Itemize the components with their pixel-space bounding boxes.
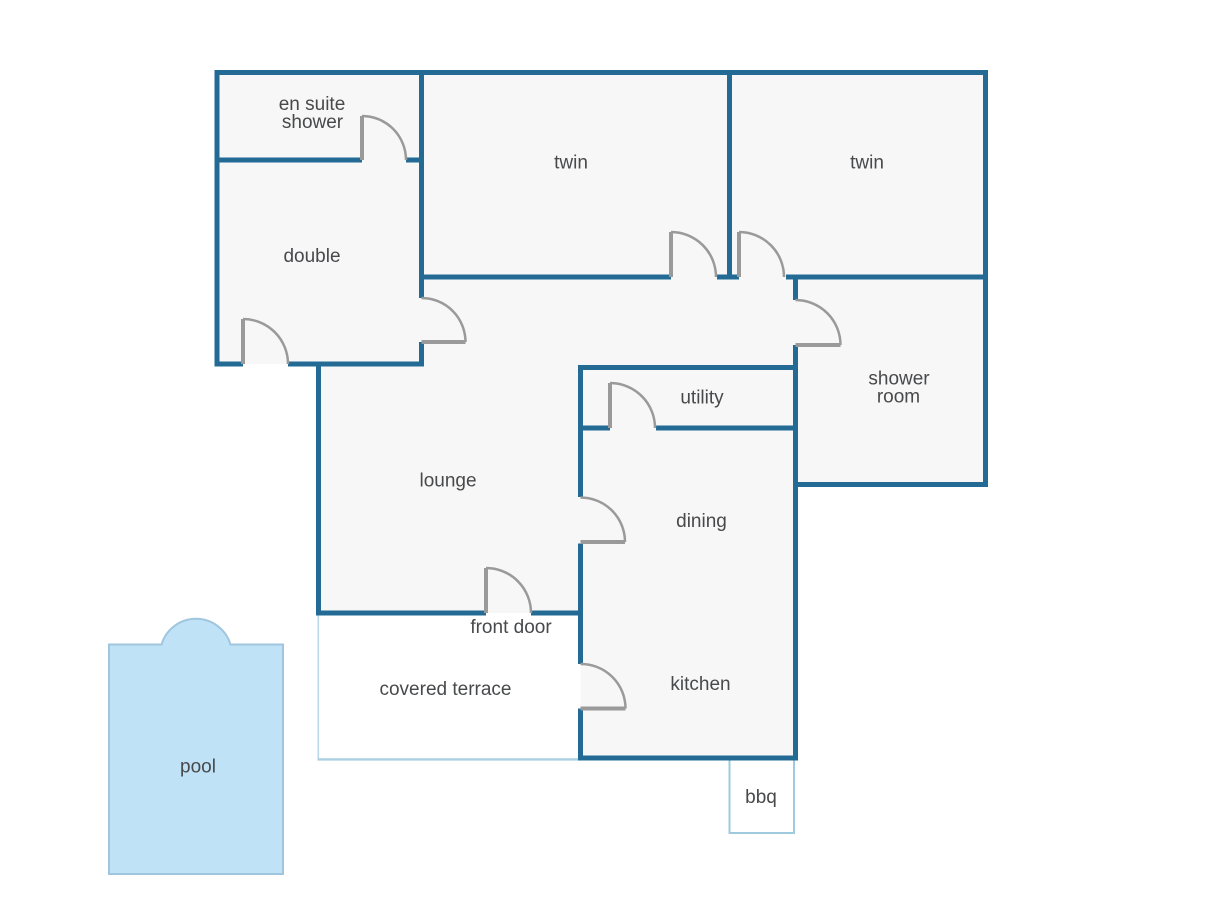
svg-text:covered terrace: covered terrace xyxy=(379,679,511,700)
svg-text:front door: front door xyxy=(470,617,552,638)
svg-text:double: double xyxy=(283,246,340,267)
svg-text:twin: twin xyxy=(850,153,884,174)
svg-text:lounge: lounge xyxy=(419,471,476,492)
svg-text:bbq: bbq xyxy=(745,787,777,808)
svg-text:utility: utility xyxy=(680,388,724,409)
svg-text:shower: shower xyxy=(282,112,344,133)
svg-text:kitchen: kitchen xyxy=(670,674,730,695)
svg-text:room: room xyxy=(877,387,920,408)
svg-text:pool: pool xyxy=(180,757,216,778)
svg-text:twin: twin xyxy=(554,153,588,174)
svg-text:dining: dining xyxy=(676,511,727,532)
